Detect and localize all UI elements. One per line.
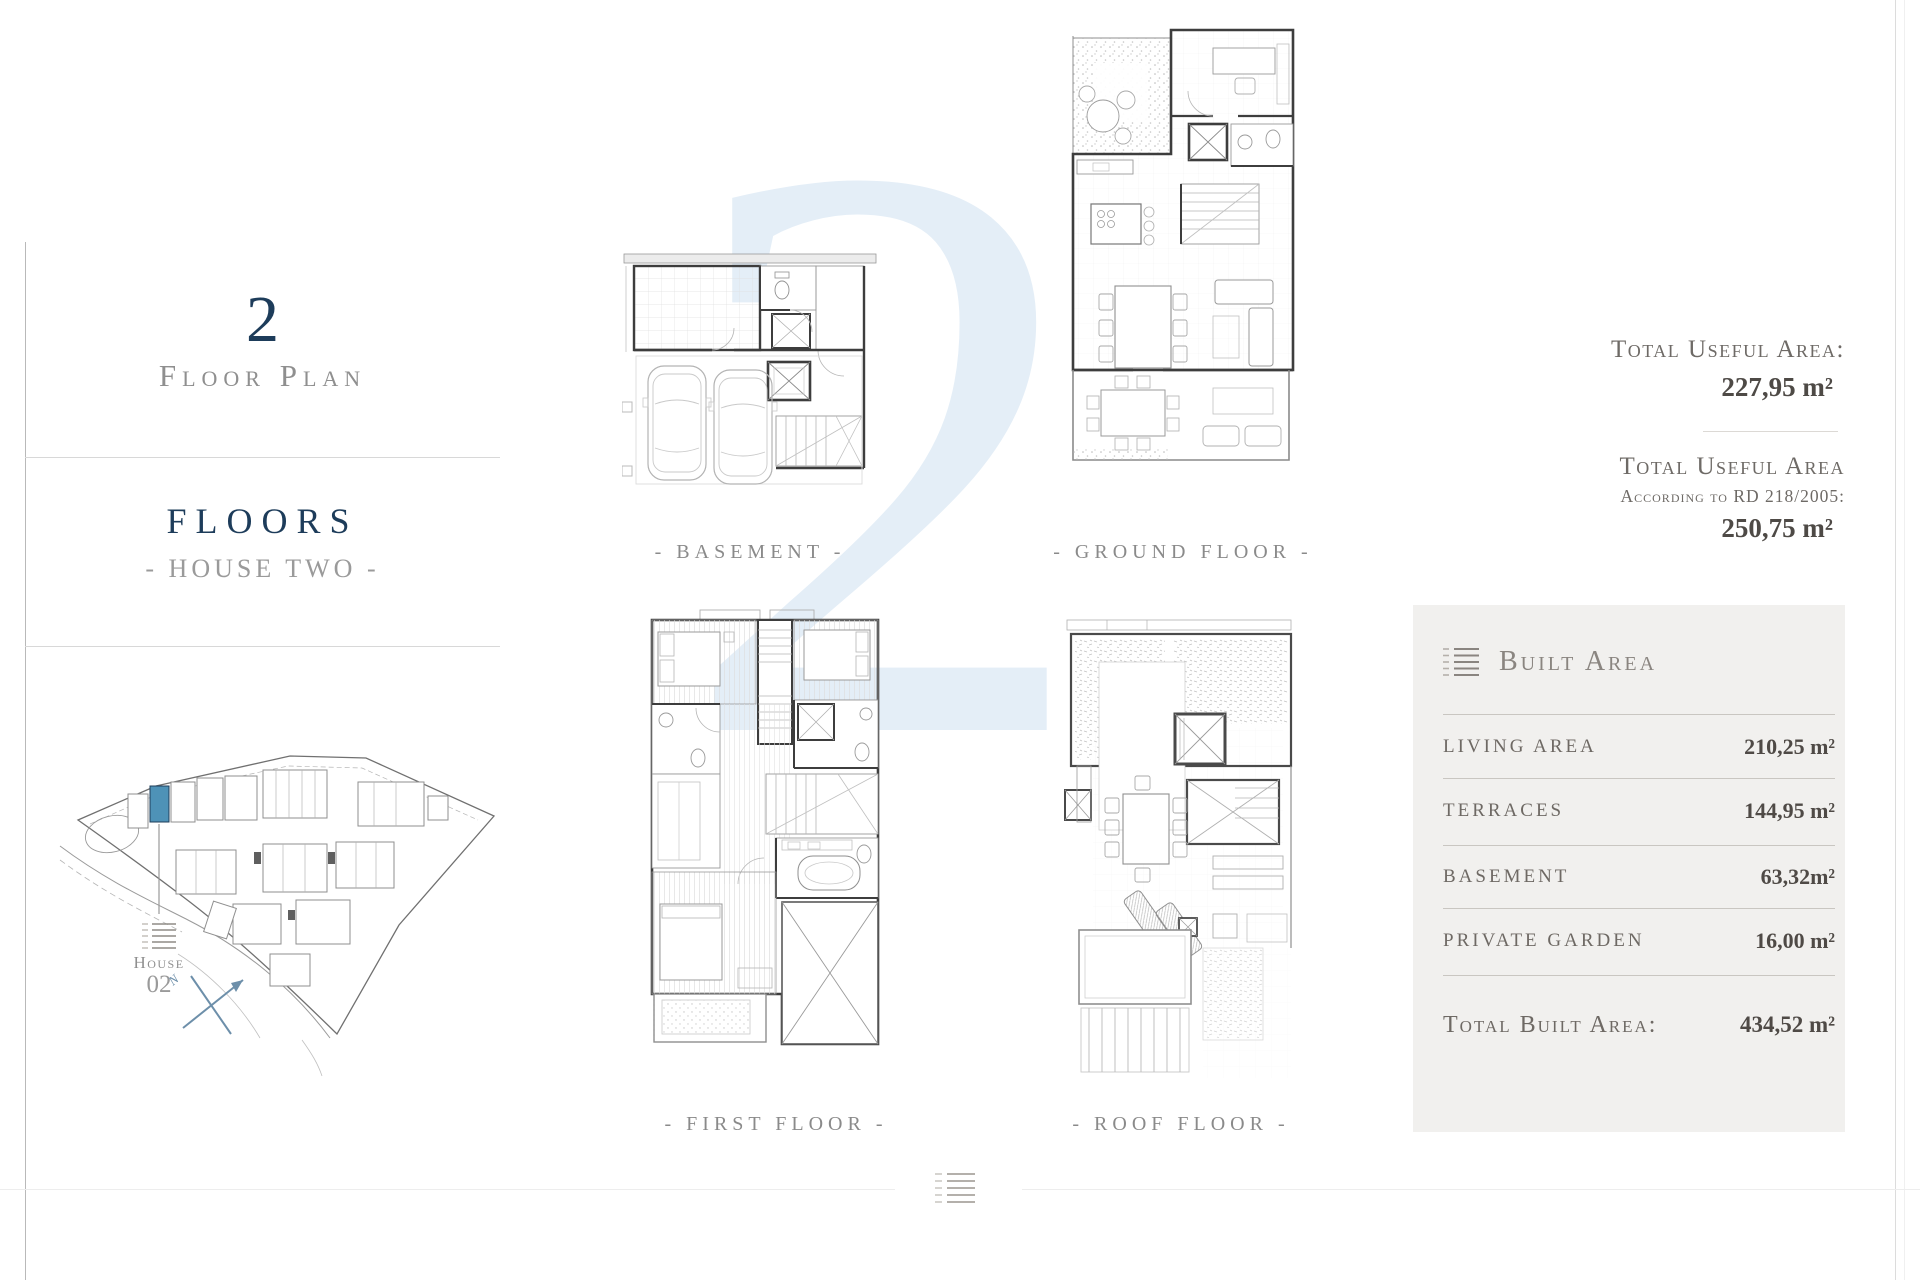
left-panel-border	[25, 242, 26, 1280]
right-page-border	[1895, 0, 1896, 1280]
total-useful-area-rd-value: 250,75 m²	[1413, 513, 1833, 544]
total-useful-area-value: 227,95 m²	[1413, 372, 1833, 403]
page-title-label: Floor Plan	[25, 358, 500, 394]
built-area-total-row: Total Built Area: 434,52 m²	[1443, 1000, 1835, 1050]
row-label: TERRACES	[1443, 800, 1564, 822]
section-subtitle: - HOUSE TWO -	[25, 554, 500, 584]
page-title-number: 2	[25, 282, 500, 358]
left-panel-divider-2	[25, 646, 500, 647]
plan-caption-ground: - GROUND FLOOR -	[1033, 541, 1333, 564]
total-value: 434,52 m²	[1740, 1012, 1835, 1038]
footer-rule-left	[0, 1189, 895, 1190]
row-value: 210,25 m²	[1744, 734, 1835, 760]
plan-caption-roof: - ROOF FLOOR -	[1051, 1113, 1311, 1136]
total-useful-area-title: Total Useful Area:	[1425, 336, 1845, 364]
brochure-page: 2 2 Floor Plan FLOORS - HOUSE TWO -	[0, 0, 1920, 1280]
total-label: Total Built Area:	[1443, 1012, 1657, 1039]
parked-cars	[643, 366, 777, 484]
basement-floor-plan	[622, 252, 878, 492]
footer-list-lines-icon	[933, 1170, 977, 1206]
site-plan: House 02 N	[58, 742, 503, 1077]
useful-area-divider	[1703, 431, 1838, 432]
total-useful-area-rd-title: Total Useful Area	[1425, 453, 1845, 481]
list-lines-icon	[142, 924, 176, 948]
row-value: 63,32m²	[1761, 864, 1835, 890]
ground-floor-plan	[1063, 8, 1303, 476]
section-title: FLOORS	[25, 500, 500, 542]
built-area-panel: Built Area LIVING AREA 210,25 m² TERRACE…	[1413, 605, 1845, 1132]
roof-floor-plan	[1063, 618, 1303, 1110]
row-value: 16,00 m²	[1755, 928, 1835, 954]
built-area-title: Built Area	[1499, 646, 1657, 678]
house-label: House	[133, 953, 184, 972]
row-value: 144,95 m²	[1744, 798, 1835, 824]
list-lines-icon	[1443, 646, 1479, 678]
total-useful-area-rd-subtitle: According to RD 218/2005:	[1425, 486, 1845, 507]
built-area-divider	[1443, 714, 1835, 715]
plan-caption-first: - FIRST FLOOR -	[646, 1113, 906, 1136]
compass-north-icon: N	[165, 970, 243, 1034]
row-label: LIVING AREA	[1443, 736, 1597, 758]
right-page-border-2	[1904, 0, 1905, 1280]
left-panel-divider-1	[25, 457, 500, 458]
highlighted-unit-house-02	[150, 786, 169, 822]
first-floor-plan	[642, 602, 888, 1064]
row-label: PRIVATE GARDEN	[1443, 930, 1645, 952]
footer-rule-right	[1022, 1189, 1920, 1190]
built-area-row: PRIVATE GARDEN 16,00 m²	[1443, 921, 1835, 961]
built-area-row: BASEMENT 63,32m²	[1443, 857, 1835, 897]
plan-caption-basement: - BASEMENT -	[622, 541, 878, 564]
row-label: BASEMENT	[1443, 866, 1569, 888]
built-area-row: TERRACES 144,95 m²	[1443, 791, 1835, 831]
built-area-row: LIVING AREA 210,25 m²	[1443, 727, 1835, 767]
